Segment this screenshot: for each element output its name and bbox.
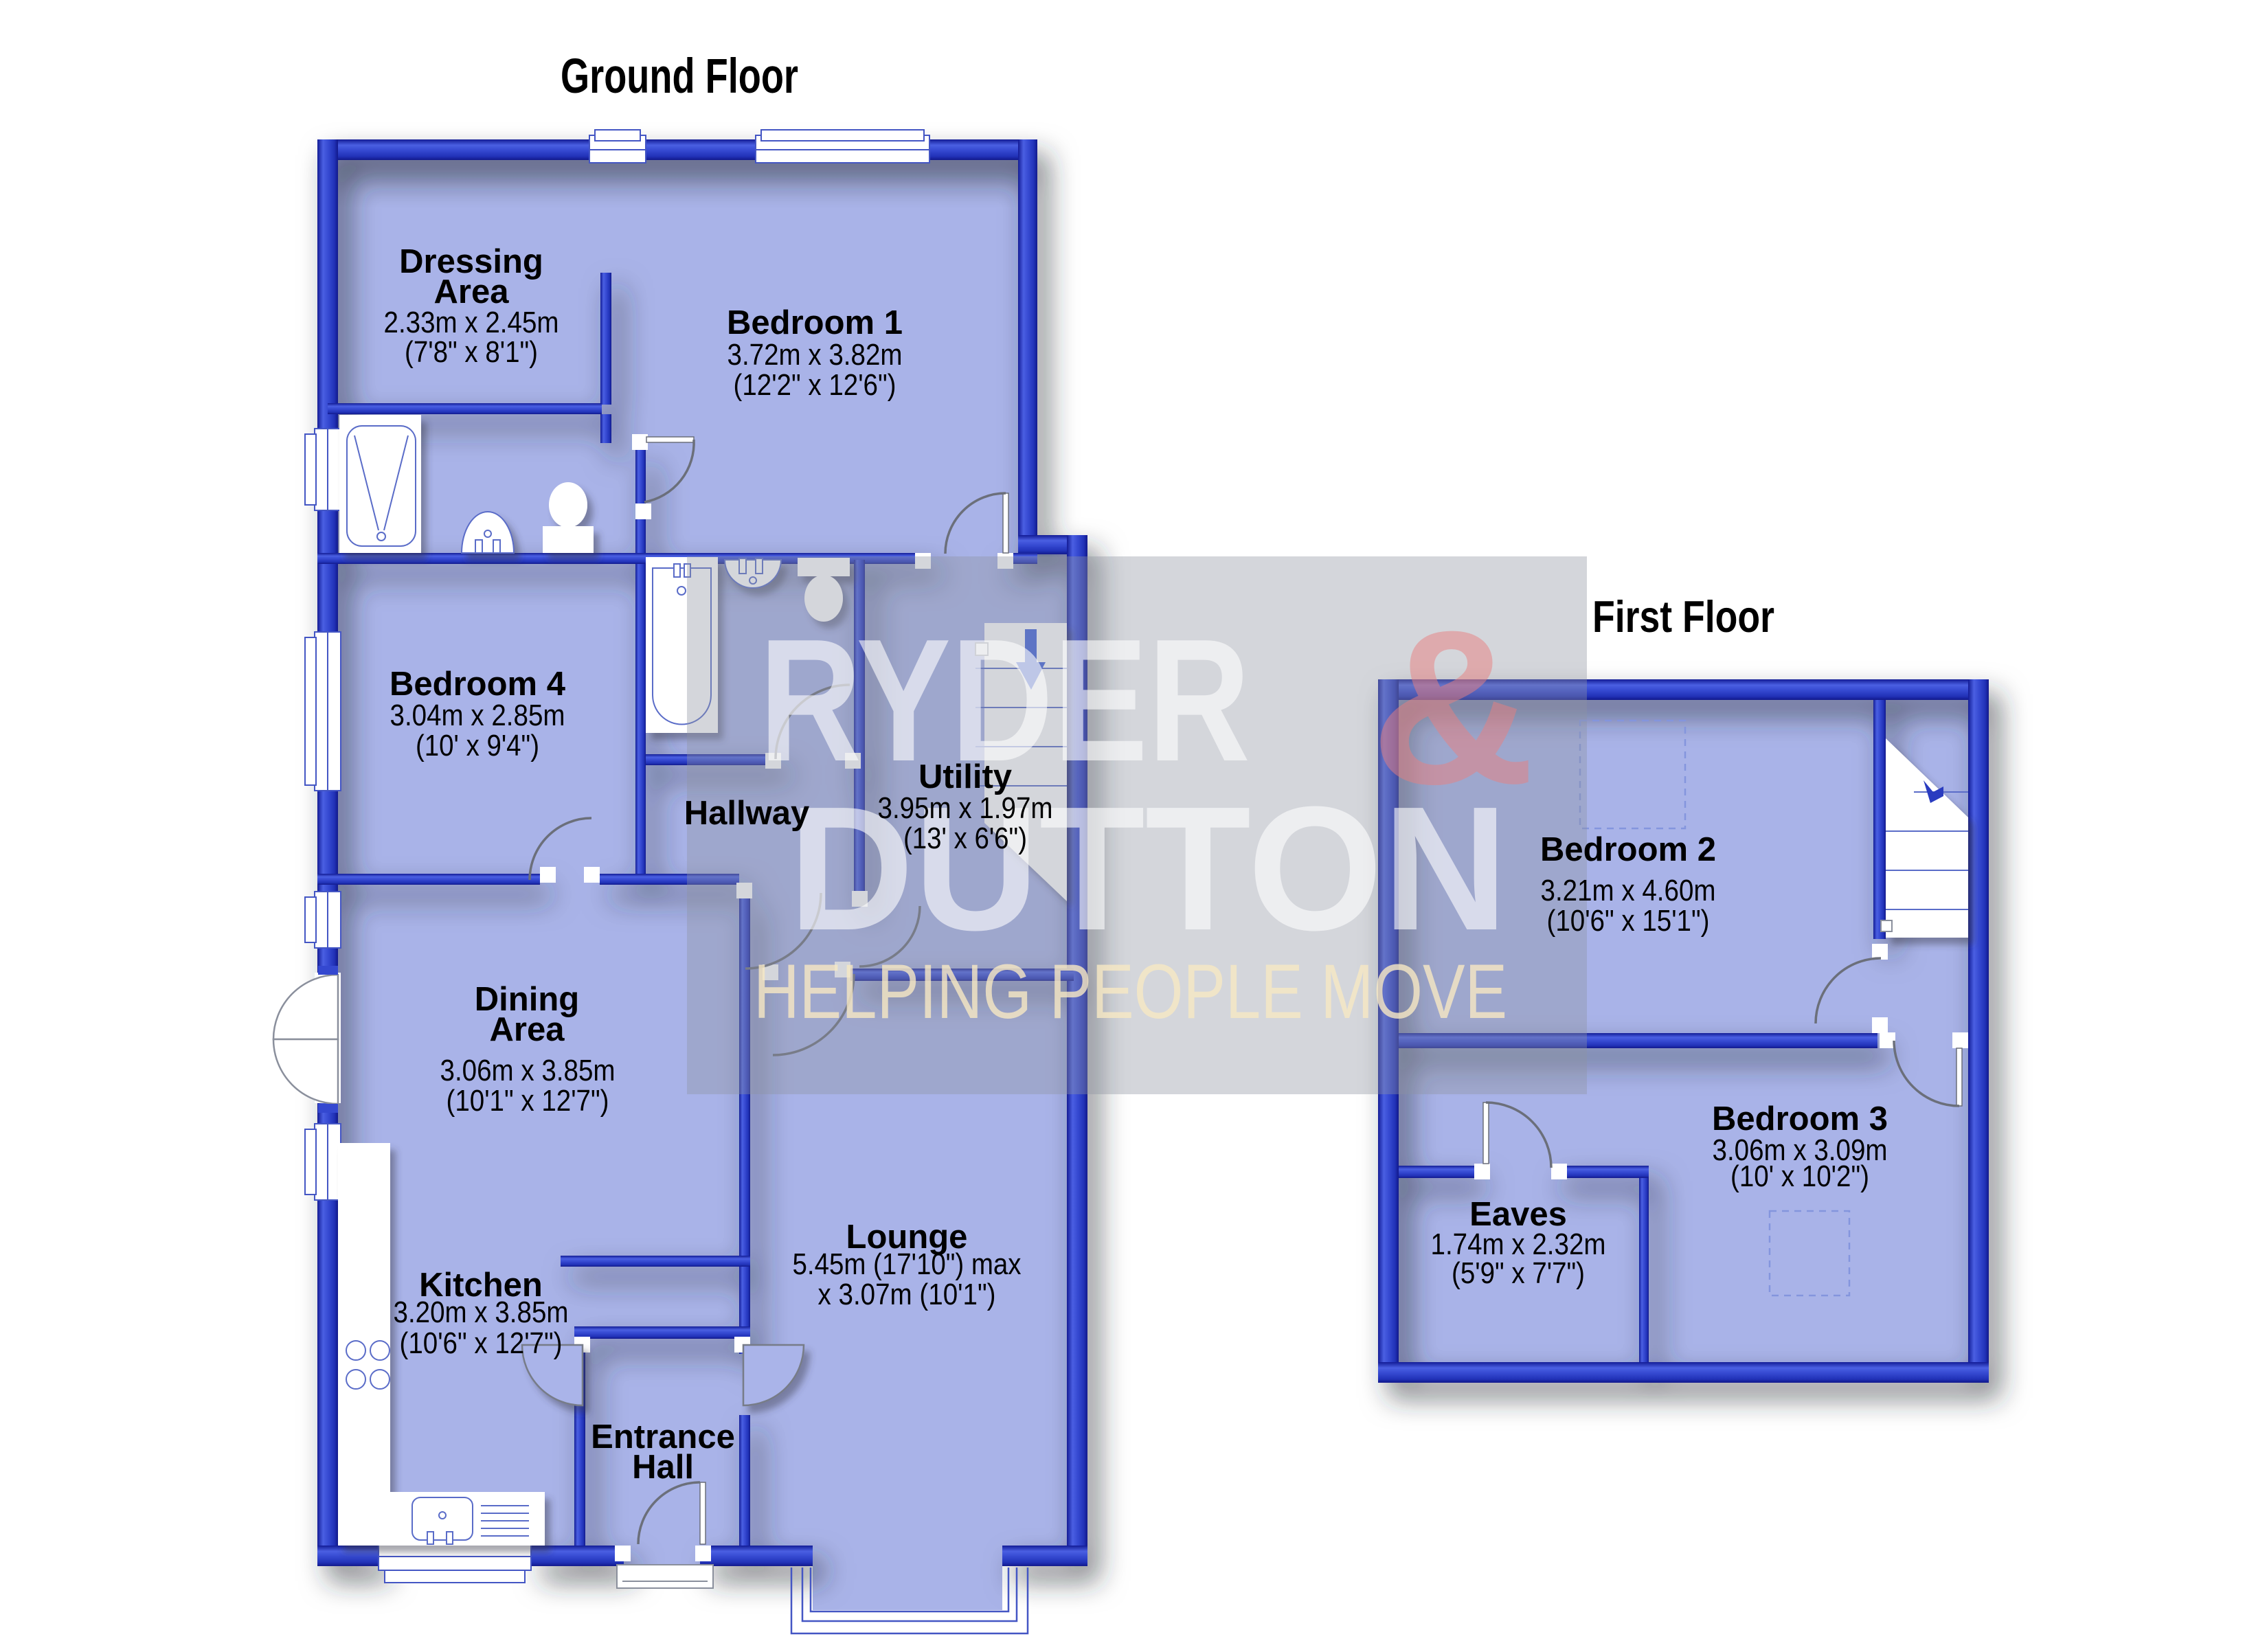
svg-text:Hallway: Hallway — [684, 795, 809, 832]
svg-text:3.04m x 2.85m: 3.04m x 2.85m — [390, 699, 565, 732]
svg-text:(7'8" x 8'1"): (7'8" x 8'1") — [405, 335, 538, 369]
svg-text:3.20m x 3.85m: 3.20m x 3.85m — [394, 1295, 569, 1329]
svg-text:3.06m x 3.85m: 3.06m x 3.85m — [440, 1054, 616, 1087]
svg-text:(10' x 9'4"): (10' x 9'4") — [416, 729, 539, 762]
svg-text:Bedroom 4: Bedroom 4 — [390, 666, 565, 703]
svg-text:(13' x 6'6"): (13' x 6'6") — [903, 822, 1027, 855]
svg-text:x 3.07m (10'1"): x 3.07m (10'1") — [818, 1278, 996, 1311]
svg-text:(12'2" x 12'6"): (12'2" x 12'6") — [734, 368, 896, 402]
svg-text:Hall: Hall — [632, 1449, 694, 1486]
svg-text:(10'6" x 12'7"): (10'6" x 12'7") — [400, 1326, 563, 1360]
svg-text:(5'9" x 7'7"): (5'9" x 7'7") — [1452, 1256, 1585, 1290]
svg-text:(10'1" x 12'7"): (10'1" x 12'7") — [447, 1084, 609, 1118]
svg-text:Utility: Utility — [918, 758, 1012, 795]
svg-text:(10' x 10'2"): (10' x 10'2") — [1730, 1159, 1869, 1193]
svg-text:3.95m x 1.97m: 3.95m x 1.97m — [878, 791, 1053, 825]
svg-text:Ground Floor: Ground Floor — [561, 49, 798, 104]
svg-text:HELPING PEOPLE MOVE: HELPING PEOPLE MOVE — [754, 949, 1507, 1034]
svg-text:(10'6" x 15'1"): (10'6" x 15'1") — [1547, 904, 1710, 938]
svg-text:First Floor: First Floor — [1592, 591, 1774, 642]
svg-text:3.72m x 3.82m: 3.72m x 3.82m — [728, 338, 903, 372]
svg-text:Bedroom 2: Bedroom 2 — [1540, 831, 1716, 868]
svg-text:Bedroom 1: Bedroom 1 — [727, 304, 903, 341]
svg-text:3.21m x 4.60m: 3.21m x 4.60m — [1541, 874, 1716, 907]
svg-text:Area: Area — [434, 273, 510, 310]
svg-text:Area: Area — [490, 1011, 565, 1048]
svg-text:5.45m (17'10") max: 5.45m (17'10") max — [793, 1247, 1022, 1281]
svg-text:2.33m x 2.45m: 2.33m x 2.45m — [384, 306, 559, 339]
svg-text:Bedroom 3: Bedroom 3 — [1712, 1100, 1888, 1138]
